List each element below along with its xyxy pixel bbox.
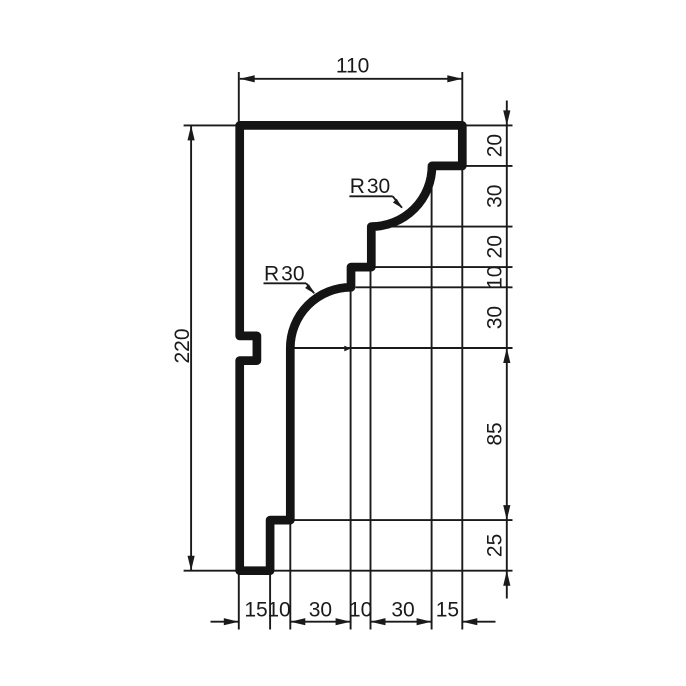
svg-text:10: 10 (483, 266, 506, 289)
svg-text:R30: R30 (264, 263, 305, 286)
svg-text:15: 15 (436, 599, 459, 622)
svg-text:15: 15 (244, 599, 267, 622)
svg-text:25: 25 (483, 534, 506, 557)
svg-text:30: 30 (483, 185, 506, 208)
svg-text:20: 20 (483, 235, 506, 258)
svg-text:20: 20 (483, 134, 506, 157)
svg-text:85: 85 (483, 422, 506, 445)
svg-text:10: 10 (267, 599, 290, 622)
svg-text:30: 30 (483, 306, 506, 329)
svg-text:220: 220 (171, 328, 194, 363)
svg-text:30: 30 (391, 599, 414, 622)
svg-text:110: 110 (336, 55, 369, 78)
svg-text:R30: R30 (350, 175, 391, 198)
svg-text:30: 30 (309, 599, 332, 622)
svg-text:10: 10 (349, 599, 372, 622)
